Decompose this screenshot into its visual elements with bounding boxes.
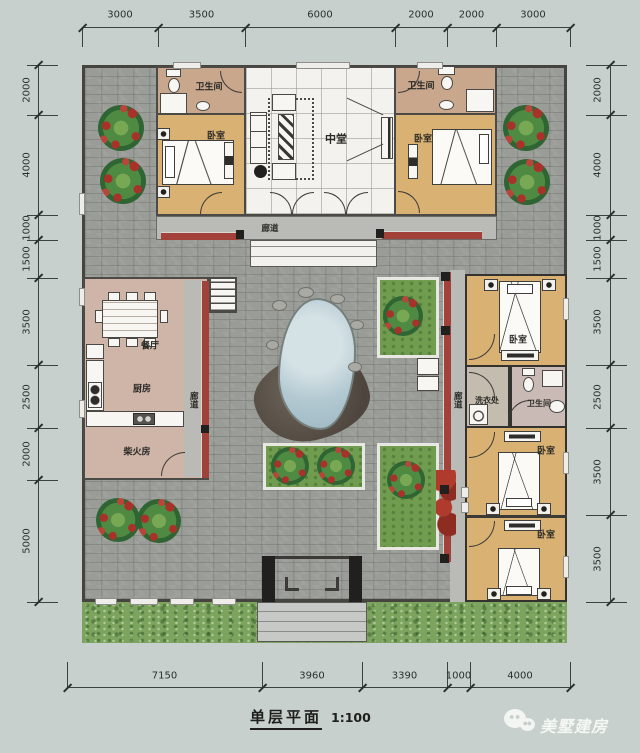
dim-label: 1000 (446, 671, 471, 682)
dim-label: 1500 (593, 246, 604, 271)
dim-tick (158, 27, 159, 47)
dim-line-left (38, 65, 39, 602)
dim-tick (245, 27, 246, 47)
dim-tick (27, 480, 58, 481)
dim-label: 3960 (299, 671, 324, 682)
dim-label: 2000 (22, 77, 33, 102)
dim-label: 4000 (507, 671, 532, 682)
dim-label: 2000 (593, 77, 604, 102)
dim-label: 2500 (22, 384, 33, 409)
dim-label: 2000 (459, 10, 484, 21)
dim-tick (27, 278, 58, 279)
plan-title-text: 单层平面 (250, 708, 322, 730)
dimension-annotations: 3000350060002000200030007150396033901000… (0, 0, 640, 753)
dim-label: 3000 (107, 10, 132, 21)
plan-title: 单层平面1:100 (250, 706, 371, 727)
dim-tick (27, 365, 58, 366)
dim-tick (27, 428, 58, 429)
dim-tick (27, 65, 58, 66)
dim-label: 1000 (593, 215, 604, 240)
dim-tick (27, 115, 58, 116)
dim-label: 1500 (22, 246, 33, 271)
dim-label: 7150 (152, 671, 177, 682)
dim-label: 3500 (22, 309, 33, 334)
dim-label: 5000 (22, 528, 33, 553)
dim-label: 3000 (520, 10, 545, 21)
dim-tick (496, 27, 497, 47)
dim-label: 2500 (593, 384, 604, 409)
plan-scale: 1:100 (331, 710, 371, 725)
dim-tick (27, 602, 58, 603)
wechat-icon-small (520, 718, 535, 731)
dim-label: 3500 (593, 546, 604, 571)
dim-label: 3500 (189, 10, 214, 21)
dim-tick (570, 27, 571, 47)
dim-label: 4000 (22, 152, 33, 177)
dim-label: 6000 (307, 10, 332, 21)
dim-label: 2000 (22, 441, 33, 466)
dim-tick (82, 27, 83, 47)
floor-plan-canvas: 卫生间卧室中堂卫生间卧室廊道餐厅厨房廊道柴火房卧室洗衣处卫生间廊道卧室卧室 30… (0, 0, 640, 753)
watermark-brand: 美墅建房 (540, 713, 608, 737)
dim-label: 3500 (593, 309, 604, 334)
dim-tick (447, 27, 448, 47)
watermark: 美墅建房 (502, 705, 637, 741)
dim-line-bottom (67, 687, 570, 688)
dim-label: 3500 (593, 459, 604, 484)
dim-tick (395, 27, 396, 47)
dim-label: 3390 (392, 671, 417, 682)
dim-label: 2000 (408, 10, 433, 21)
dim-line-right (610, 65, 611, 602)
dim-label: 1000 (22, 215, 33, 240)
dim-label: 4000 (593, 152, 604, 177)
